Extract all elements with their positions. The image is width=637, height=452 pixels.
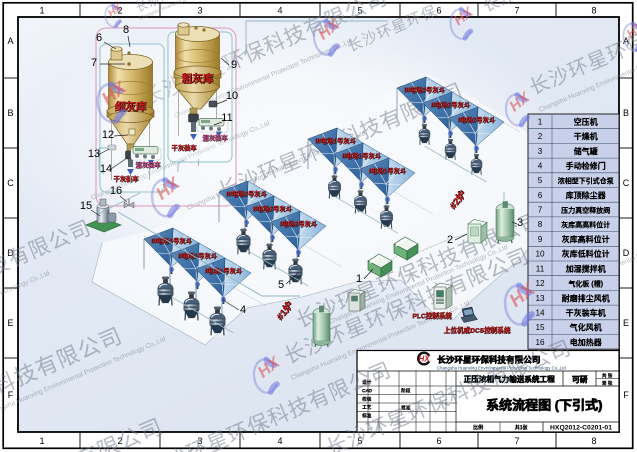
svg-text:16: 16 (110, 185, 122, 197)
svg-text:14: 14 (535, 309, 545, 318)
svg-text:湿灰装车: 湿灰装车 (135, 160, 161, 169)
svg-text:10: 10 (226, 90, 238, 102)
svg-text:4: 4 (277, 436, 282, 446)
svg-text:浓相型下引式仓泵: 浓相型下引式仓泵 (558, 176, 614, 185)
svg-text:储气罐: 储气罐 (574, 146, 598, 156)
svg-text:15: 15 (535, 323, 545, 332)
svg-text:I电场1号灰斗: I电场1号灰斗 (369, 166, 407, 175)
svg-text:9: 9 (231, 59, 237, 71)
svg-text:7: 7 (538, 206, 543, 215)
svg-text:C: C (7, 178, 14, 188)
svg-text:灰库高高料位计: 灰库高高料位计 (561, 220, 610, 229)
svg-text:C: C (623, 178, 630, 188)
svg-text:9: 9 (538, 235, 543, 244)
svg-text:共 张: 共 张 (602, 372, 613, 379)
svg-text:B: B (623, 108, 629, 118)
svg-text:比例: 比例 (473, 424, 483, 431)
svg-text:HX: HX (418, 355, 430, 364)
svg-text:8: 8 (123, 24, 129, 36)
svg-text:阶段: 阶段 (401, 387, 411, 394)
svg-text:13: 13 (88, 148, 100, 160)
svg-text:压力真空释放阀: 压力真空释放阀 (561, 206, 610, 215)
svg-text:气化风机: 气化风机 (570, 322, 602, 332)
svg-text:1: 1 (39, 5, 44, 15)
svg-text:干灰装车机: 干灰装车机 (566, 308, 606, 318)
svg-text:1: 1 (538, 117, 543, 126)
svg-text:III电场2号灰斗: III电场2号灰斗 (404, 85, 445, 94)
svg-text:粗灰库: 粗灰库 (182, 72, 214, 85)
svg-text:8: 8 (538, 220, 543, 229)
svg-text:电加热器: 电加热器 (570, 337, 602, 347)
svg-text:7: 7 (514, 5, 519, 15)
svg-text:A: A (7, 36, 13, 46)
svg-text:6: 6 (436, 436, 441, 446)
svg-text:5: 5 (538, 176, 543, 185)
svg-text:工艺: 工艺 (362, 405, 372, 410)
svg-text:手动检修门: 手动检修门 (566, 160, 606, 170)
svg-text:12: 12 (102, 129, 114, 141)
svg-text:12: 12 (535, 279, 545, 288)
svg-text:校核: 校核 (362, 395, 372, 402)
svg-text:15: 15 (80, 200, 92, 212)
svg-text:7: 7 (91, 57, 97, 69)
svg-text:10: 10 (535, 250, 545, 259)
svg-text:III电场2号灰斗: III电场2号灰斗 (226, 189, 267, 198)
svg-text:14: 14 (100, 163, 112, 175)
svg-text:灰库低料位计: 灰库低料位计 (562, 249, 610, 259)
svg-text:8: 8 (591, 5, 596, 15)
svg-text:1: 1 (39, 436, 44, 446)
svg-text:4: 4 (538, 161, 543, 170)
svg-text:5: 5 (278, 279, 284, 291)
svg-text:干燥机: 干燥机 (574, 131, 598, 141)
svg-text:11: 11 (536, 264, 545, 273)
svg-text:可研: 可研 (572, 375, 588, 384)
svg-text:F: F (623, 390, 629, 400)
svg-text:I电场2号灰斗: I电场2号灰斗 (280, 219, 318, 228)
svg-text:灰库高料位计: 灰库高料位计 (562, 234, 610, 244)
svg-text:上位机或DCS控制系统: 上位机或DCS控制系统 (444, 326, 511, 335)
svg-text:3: 3 (517, 217, 523, 229)
svg-text:空压机: 空压机 (574, 116, 598, 126)
svg-text:气化板 (槽): 气化板 (槽) (568, 279, 603, 288)
svg-text:湿灰装车: 湿灰装车 (202, 133, 228, 142)
svg-text:加湿搅拌机: 加湿搅拌机 (566, 263, 606, 273)
svg-text:共1张: 共1张 (515, 424, 528, 431)
svg-text:II电场2号灰斗: II电场2号灰斗 (253, 204, 293, 213)
svg-text:标准: 标准 (362, 412, 372, 419)
svg-text:II电场2号灰斗: II电场2号灰斗 (431, 100, 471, 109)
svg-text:E: E (623, 318, 629, 328)
svg-text:干灰装车: 干灰装车 (171, 143, 197, 152)
svg-text:系统流程图 (下引式): 系统流程图 (下引式) (486, 398, 602, 413)
svg-text:4: 4 (240, 304, 246, 316)
svg-text:3: 3 (538, 147, 543, 156)
svg-text:HXQ2012-C0201-01: HXQ2012-C0201-01 (550, 425, 612, 432)
svg-text:8: 8 (591, 436, 596, 446)
svg-text:2: 2 (538, 132, 543, 141)
svg-text:PLC控制系统: PLC控制系统 (412, 311, 452, 320)
svg-text:库顶除尘器: 库顶除尘器 (566, 190, 606, 200)
svg-text:III电场1号灰斗: III电场1号灰斗 (315, 136, 356, 145)
svg-text:耐磨排尘风机: 耐磨排尘风机 (562, 293, 610, 303)
svg-text:1: 1 (356, 273, 362, 285)
svg-text:7: 7 (514, 436, 519, 446)
svg-text:2: 2 (447, 234, 453, 246)
svg-text:6: 6 (538, 191, 543, 200)
svg-text:B: B (7, 108, 13, 118)
svg-text:干灰装车: 干灰装车 (113, 174, 139, 183)
svg-text:6: 6 (96, 32, 102, 44)
svg-text:II电场1号灰斗: II电场1号灰斗 (342, 151, 382, 160)
svg-text:E: E (7, 318, 13, 328)
svg-text:I电场2号灰斗: I电场2号灰斗 (458, 115, 496, 124)
svg-text:11: 11 (221, 112, 232, 124)
svg-text:第 张: 第 张 (602, 380, 613, 387)
